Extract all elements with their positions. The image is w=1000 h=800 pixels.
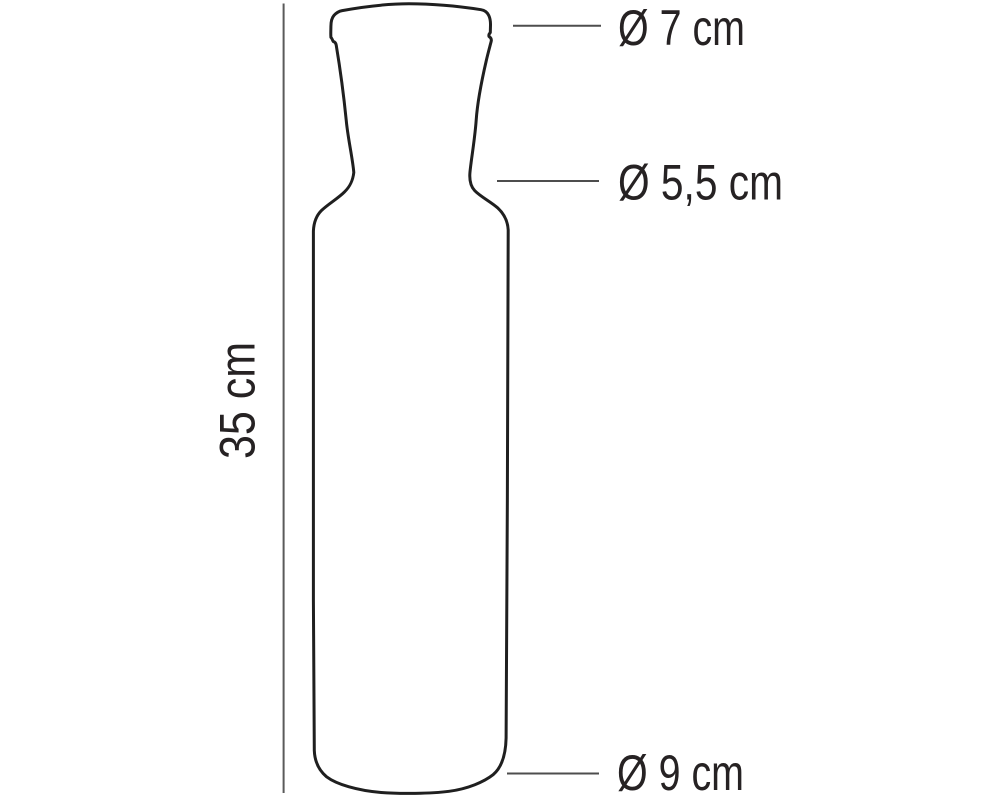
svg-text:Ø 5,5 cm: Ø 5,5 cm: [618, 155, 783, 211]
svg-text:35 cm: 35 cm: [210, 342, 266, 459]
svg-text:Ø 9 cm: Ø 9 cm: [617, 745, 744, 800]
svg-text:Ø 7 cm: Ø 7 cm: [618, 0, 745, 56]
